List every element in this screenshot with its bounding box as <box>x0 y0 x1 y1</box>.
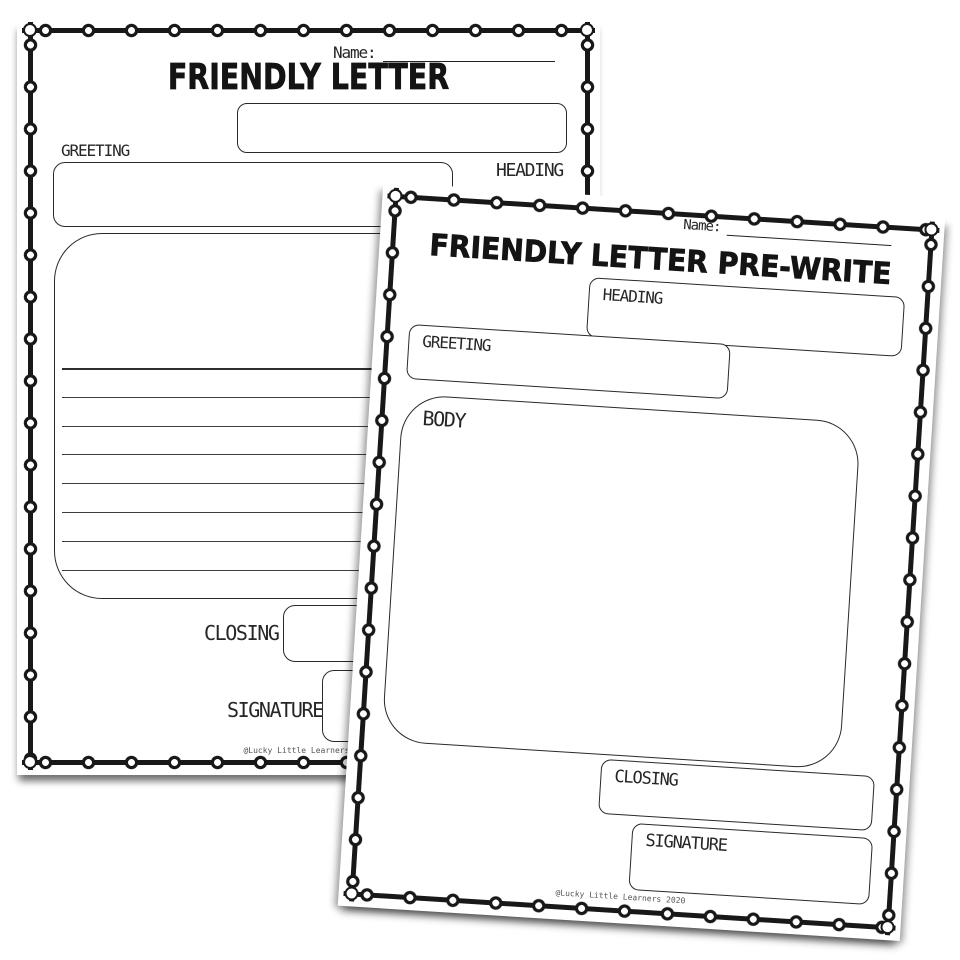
corner-dot-icon <box>23 755 37 769</box>
corner-dot-icon <box>880 920 895 935</box>
heading-label: HEADING <box>602 285 663 308</box>
page-friendly-letter-pre-write: Name: FRIENDLY LETTER PRE-WRITE HEADING … <box>338 182 945 941</box>
greeting-label: GREETING <box>61 141 129 160</box>
name-blank-line <box>727 221 893 246</box>
corner-dot-icon <box>23 23 37 37</box>
closing-label: CLOSING <box>614 767 678 791</box>
closing-label: CLOSING <box>204 621 279 645</box>
name-row: Name: <box>683 217 893 246</box>
heading-box <box>237 103 567 153</box>
worksheet-collage: Name: FRIENDLY LETTER HEADING GREETING C… <box>0 0 960 960</box>
page-title: FRIENDLY LETTER <box>78 59 539 97</box>
corner-dot-icon <box>580 23 594 37</box>
body-label: BODY <box>422 406 466 433</box>
signature-box: SIGNATURE <box>628 823 873 905</box>
name-label: Name: <box>683 217 721 235</box>
body-box: BODY <box>381 394 861 770</box>
border-top <box>22 22 595 39</box>
heading-label: HEADING <box>496 160 563 181</box>
corner-dot-icon <box>924 222 939 237</box>
greeting-label: GREETING <box>422 332 491 355</box>
corner-dot-icon <box>344 886 359 901</box>
corner-dot-icon <box>388 188 403 203</box>
signature-label: SIGNATURE <box>645 831 728 856</box>
closing-box: CLOSING <box>598 759 875 831</box>
border-left <box>22 22 39 770</box>
signature-label: SIGNATURE <box>227 698 323 722</box>
